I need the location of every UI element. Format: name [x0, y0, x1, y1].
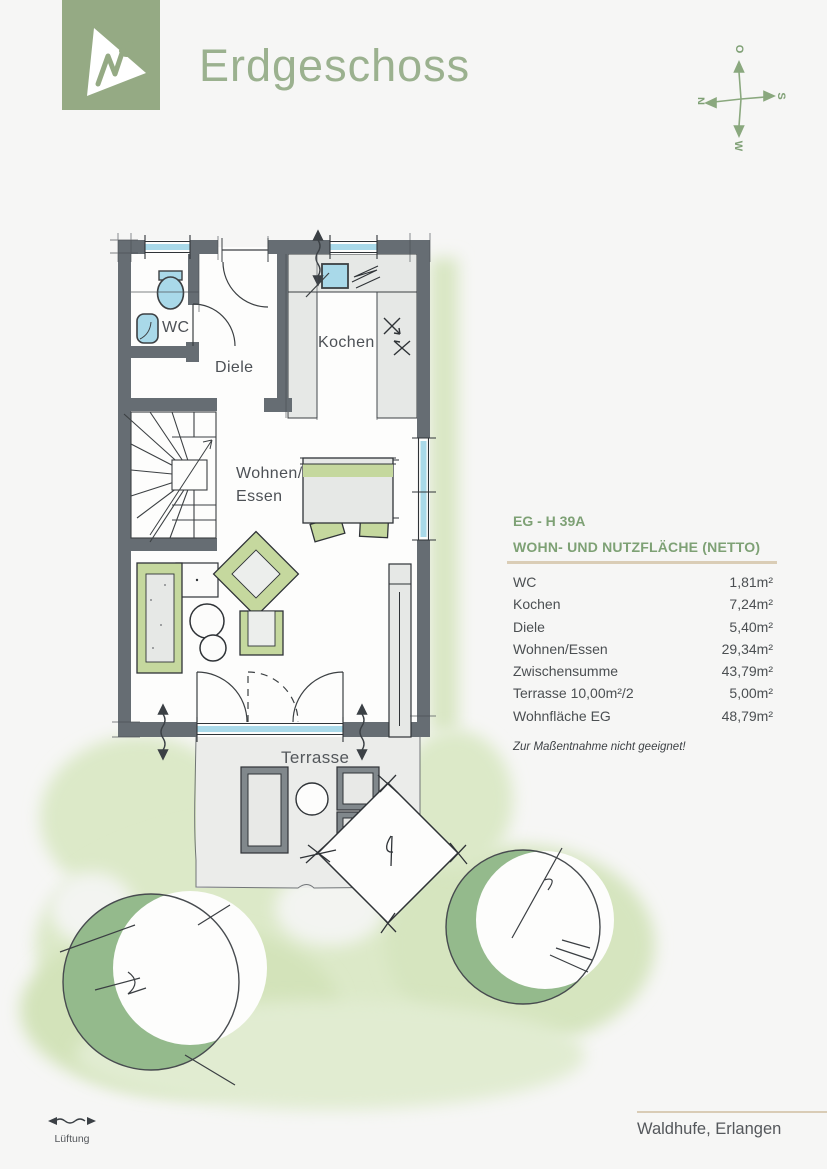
dining-table: [300, 458, 399, 523]
ventilation-wavy-arrow-icon: [47, 1115, 97, 1127]
ventilation-legend: Lüftung: [44, 1114, 100, 1145]
ventilation-legend-label: Lüftung: [44, 1133, 100, 1145]
room-label-wohnen: Wohnen/: [236, 465, 303, 482]
area-row-value: 48,79m²: [722, 705, 773, 727]
measurement-note: Zur Maßentnahme nicht geeignet!: [513, 741, 773, 753]
area-row-value: 7,24m²: [729, 593, 773, 615]
area-row: Terrasse 10,00m²/2 5,00m²: [513, 682, 773, 704]
compass-south-label: S: [775, 92, 787, 99]
area-row-value: 1,81m²: [729, 571, 773, 593]
area-row-value: 43,79m²: [722, 660, 773, 682]
toilet-icon: [158, 271, 184, 309]
company-logo: [62, 0, 160, 110]
room-label-wc: WC: [162, 319, 189, 336]
sofa: [137, 563, 182, 673]
area-row: WC 1,81m²: [513, 571, 773, 593]
area-row: Diele 5,40m²: [513, 616, 773, 638]
logo-mark-icon: [62, 0, 160, 110]
room-label-terrasse: Terrasse: [281, 748, 349, 767]
area-row-label: Terrasse 10,00m²/2: [513, 682, 634, 704]
compass-east-label: O: [733, 45, 745, 54]
area-table-rows: WC 1,81m² Kochen 7,24m² Diele 5,40m² Woh…: [513, 571, 773, 727]
armchair: [240, 611, 283, 655]
compass-west-label: W: [732, 141, 744, 152]
cabinet: [389, 564, 411, 737]
floorplan-page: WC Diele Kochen Wohnen/ Essen Terrasse E…: [0, 0, 827, 1169]
room-label-diele: Diele: [215, 359, 253, 376]
area-table-heading: WOHN- UND NUTZFLÄCHE (NETTO): [513, 539, 773, 555]
sink-icon: [137, 314, 158, 343]
area-row: Zwischensumme 43,79m²: [513, 660, 773, 682]
area-row-label: Wohnfläche EG: [513, 705, 611, 727]
area-row: Kochen 7,24m²: [513, 593, 773, 615]
compass-north-label: N: [698, 97, 706, 105]
area-row-label: Diele: [513, 616, 545, 638]
terrace-lounger: [241, 767, 288, 853]
area-row-value: 5,40m²: [729, 616, 773, 638]
area-row: Wohnfläche EG 48,79m²: [513, 705, 773, 727]
compass-icon: O N S W: [698, 36, 790, 161]
area-table-divider: [507, 561, 777, 564]
area-row-label: WC: [513, 571, 536, 593]
terrace-table: [296, 783, 328, 815]
area-row-value: 5,00m²: [729, 682, 773, 704]
project-name: Waldhufe, Erlangen: [637, 1111, 827, 1139]
area-row: Wohnen/Essen 29,34m²: [513, 638, 773, 660]
area-row-label: Kochen: [513, 593, 560, 615]
staircase: [124, 412, 216, 542]
room-label-essen: Essen: [236, 488, 282, 505]
room-label-kochen: Kochen: [318, 334, 375, 351]
area-row-value: 29,34m²: [722, 638, 773, 660]
area-row-label: Zwischensumme: [513, 660, 618, 682]
page-title: Erdgeschoss: [199, 40, 470, 92]
area-row-label: Wohnen/Essen: [513, 638, 608, 660]
plan-id: EG - H 39A: [513, 513, 773, 529]
area-table: EG - H 39A WOHN- UND NUTZFLÄCHE (NETTO) …: [513, 513, 773, 765]
